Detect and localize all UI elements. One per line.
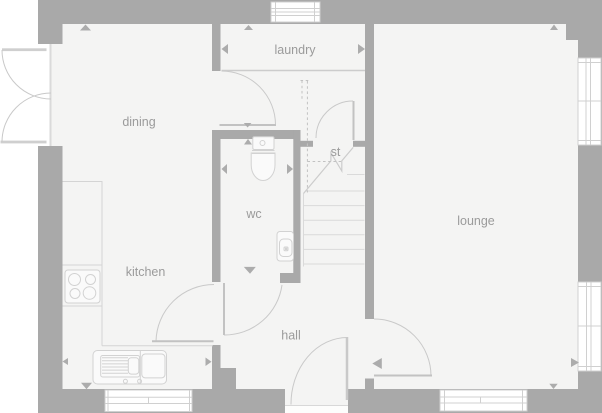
svg-text:laundry: laundry [275,43,317,57]
svg-text:wc: wc [245,207,261,221]
svg-text:hall: hall [281,329,300,343]
svg-text:dining: dining [122,115,155,129]
svg-text:lounge: lounge [457,214,495,228]
svg-text:kitchen: kitchen [126,265,166,279]
svg-text:st: st [331,145,341,159]
